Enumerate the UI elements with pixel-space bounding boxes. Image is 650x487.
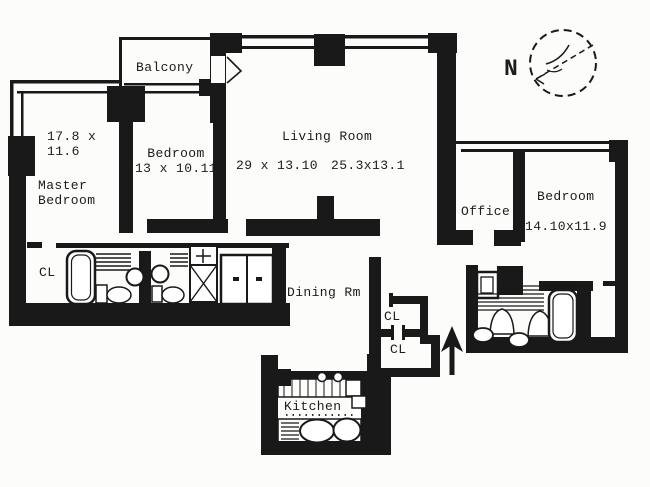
stove bbox=[300, 420, 334, 443]
kitchen-sink-knob bbox=[318, 373, 327, 382]
bedroom-3-dims: 14.10x11.9 bbox=[525, 219, 607, 234]
dining-entry-walls bbox=[369, 257, 440, 378]
toilet-2 bbox=[162, 287, 184, 303]
balcony-door-swing bbox=[227, 57, 241, 83]
sink-2 bbox=[152, 266, 169, 283]
master-bedroom-dims: 17.8 x 11.6 bbox=[47, 129, 96, 159]
closet-label-hall: CL bbox=[39, 265, 55, 280]
sink-1 bbox=[127, 269, 144, 286]
kitchen-sink-knob bbox=[334, 373, 343, 382]
room-label-office: Office bbox=[461, 204, 510, 219]
entry-arrow bbox=[441, 326, 463, 375]
toilet-1 bbox=[107, 287, 131, 303]
living-room-dims-right: 25.3x13.1 bbox=[331, 158, 405, 173]
compass-rose bbox=[530, 30, 596, 96]
balcony-door-opening bbox=[211, 56, 225, 83]
room-label-kitchen: Kitchen bbox=[284, 399, 341, 414]
room-label-bedroom-2: Bedroom 13 x 10.11 bbox=[129, 146, 223, 176]
compass-north-label: N bbox=[504, 62, 518, 77]
hall-wardrobe bbox=[221, 255, 273, 304]
kitchen-sink bbox=[334, 419, 361, 442]
room-label-living-room: Living Room bbox=[282, 129, 372, 144]
bathroom-1-fixtures bbox=[67, 251, 144, 304]
room-label-balcony: Balcony bbox=[136, 60, 193, 75]
closet-label-entry-lower: CL bbox=[390, 342, 406, 357]
room-label-bedroom-3: Bedroom bbox=[537, 189, 594, 204]
closet-label-entry-upper: CL bbox=[384, 309, 400, 324]
sink-3 bbox=[473, 328, 493, 342]
toilet-3 bbox=[490, 309, 514, 334]
room-label-master-bedroom: Master Bedroom bbox=[38, 178, 95, 208]
floor-plan-page: Balcony 17.8 x 11.6 Master Bedroom Bedro… bbox=[0, 0, 650, 487]
living-room-dims-left: 29 x 13.10 bbox=[236, 158, 318, 173]
sink-4 bbox=[509, 333, 529, 347]
bathroom-2-fixtures bbox=[152, 246, 218, 303]
room-label-dining-room: Dining Rm bbox=[287, 285, 361, 300]
